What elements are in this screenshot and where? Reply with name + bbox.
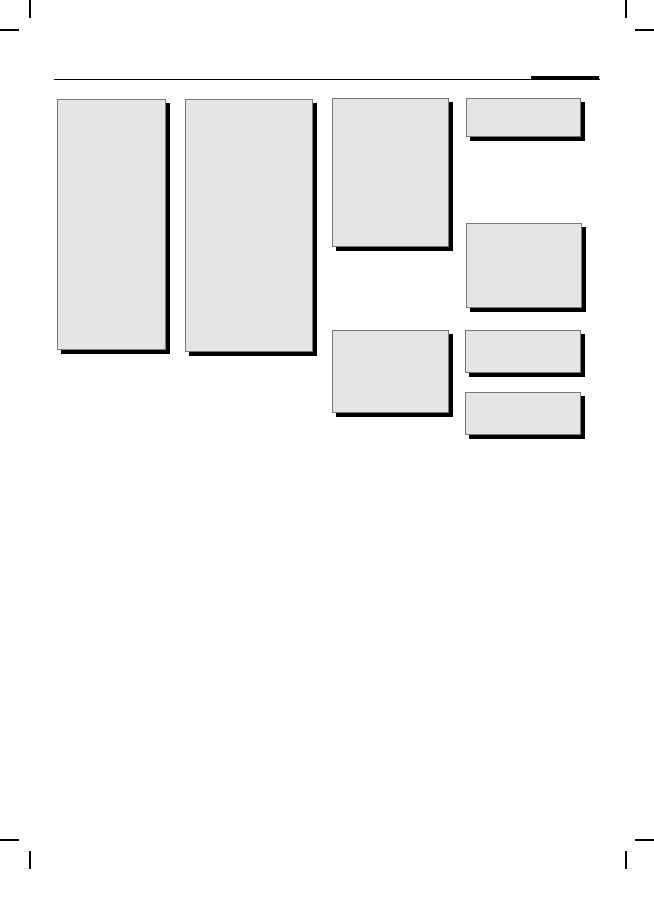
sidebar-block-3 — [465, 330, 581, 373]
crop-mark-bottom-right-vertical — [625, 851, 627, 869]
crop-mark-top-left-horizontal — [0, 29, 19, 31]
crop-mark-top-left-vertical — [29, 0, 31, 18]
masthead-bar — [531, 76, 599, 80]
crop-mark-top-right-horizontal — [635, 29, 654, 31]
article-block-column-2 — [185, 99, 313, 352]
sidebar-block-2 — [466, 223, 582, 308]
crop-mark-top-right-vertical — [625, 0, 627, 18]
page-canvas — [0, 0, 654, 916]
crop-mark-bottom-left-vertical — [29, 851, 31, 869]
crop-mark-bottom-right-horizontal — [635, 839, 654, 841]
article-block-column-3-top — [332, 98, 449, 247]
header-rule — [54, 79, 600, 81]
sidebar-block-4 — [465, 392, 581, 435]
article-block-column-3-bottom — [332, 330, 449, 413]
sidebar-block-1 — [466, 98, 581, 137]
article-block-column-1 — [57, 99, 166, 350]
crop-mark-bottom-left-horizontal — [0, 839, 19, 841]
